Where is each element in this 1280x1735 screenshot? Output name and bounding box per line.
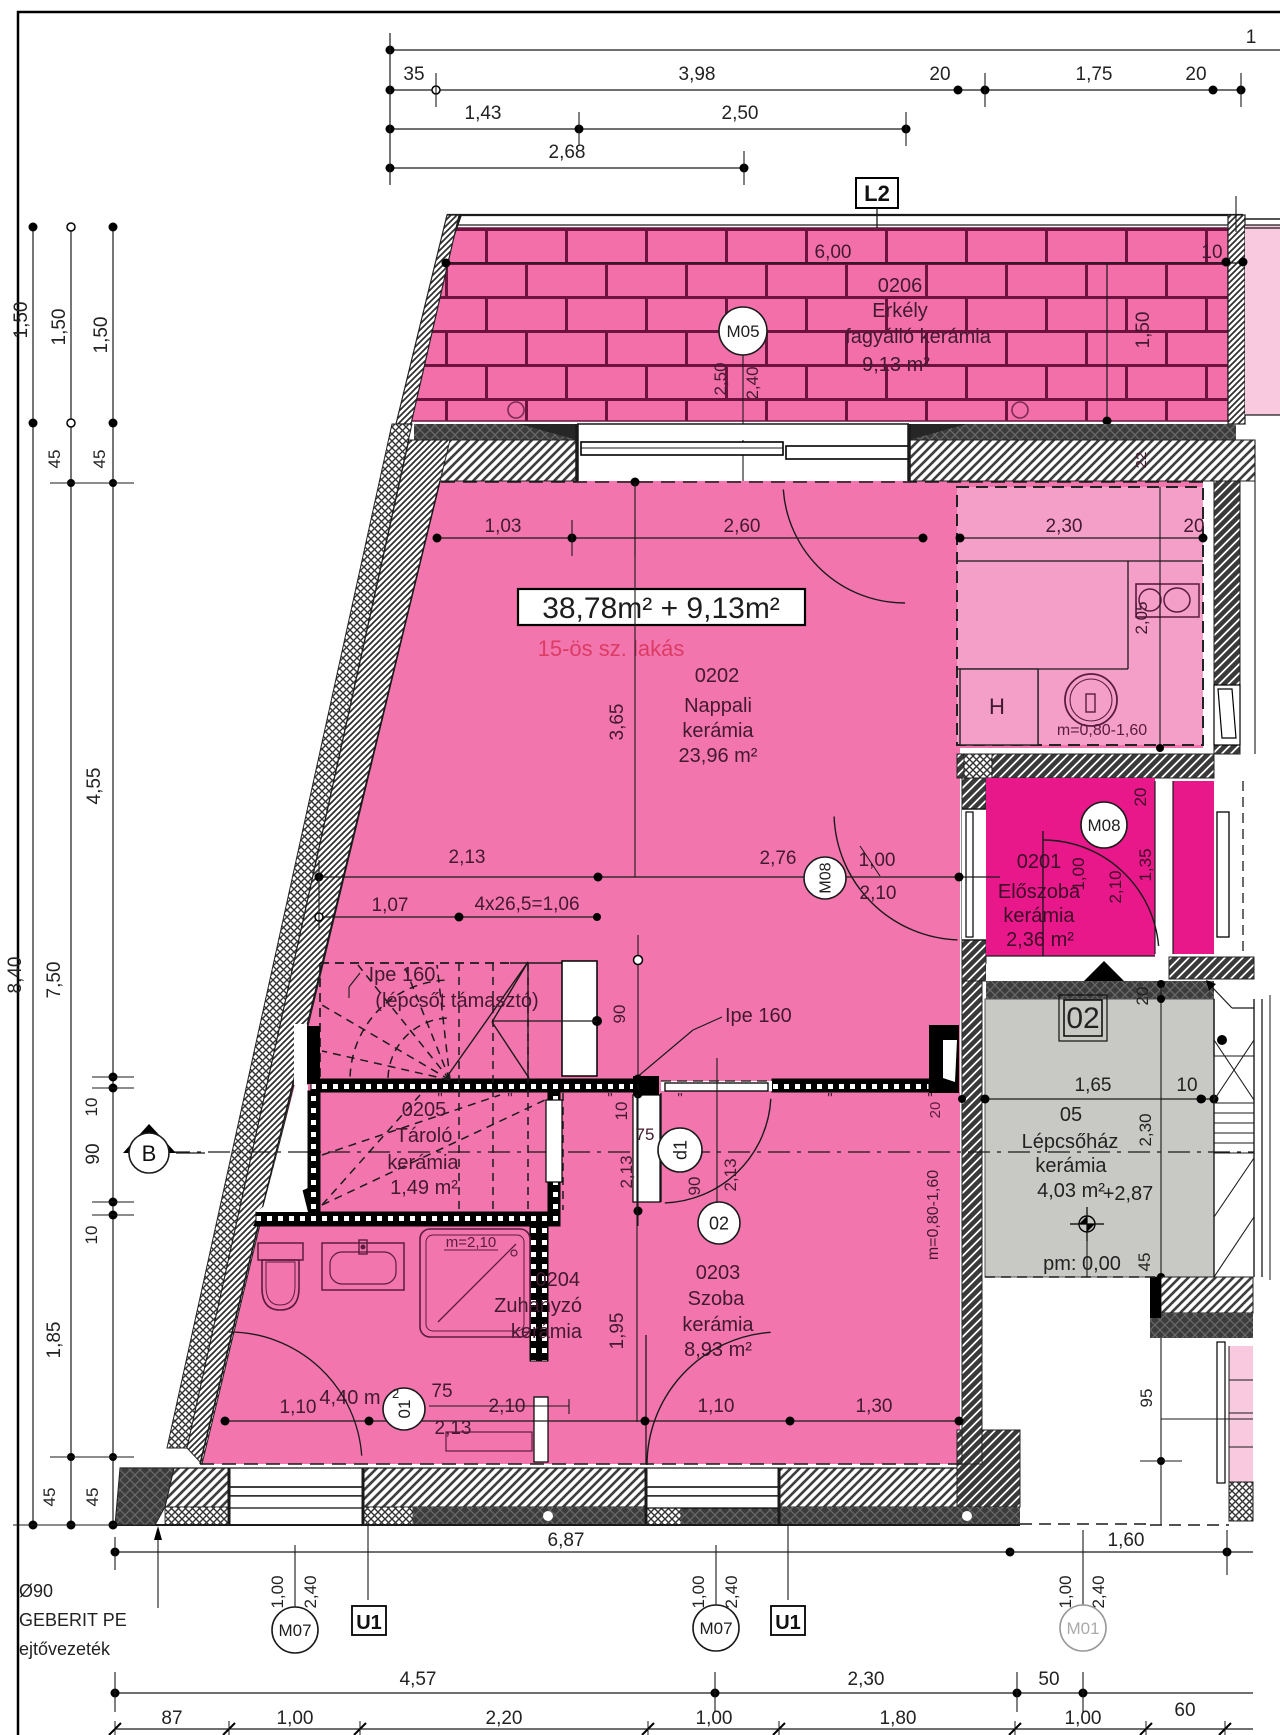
svg-text:6,87: 6,87 [548,1530,585,1551]
svg-text:1,30: 1,30 [856,1396,893,1417]
svg-text:6,00: 6,00 [815,242,852,263]
svg-text:+2,87: +2,87 [1103,1183,1154,1205]
svg-text:9,13 m²: 9,13 m² [862,354,930,376]
svg-text:45: 45 [90,450,109,469]
svg-text:10: 10 [612,1102,631,1121]
svg-text:1: 1 [1246,27,1257,48]
svg-text:m=2,10: m=2,10 [446,1234,496,1251]
svg-text:10: 10 [82,1226,101,1245]
svg-text:20: 20 [1131,788,1150,807]
svg-text:Szoba: Szoba [688,1288,746,1310]
svg-text:1,60: 1,60 [1108,1530,1145,1551]
svg-text:1,00: 1,00 [1065,1708,1102,1729]
svg-text:Erkély: Erkély [872,300,928,322]
svg-text:2,60: 2,60 [724,516,761,537]
svg-text:1,80: 1,80 [880,1708,917,1729]
svg-text:H: H [989,694,1005,719]
svg-text:1,00: 1,00 [1056,1575,1075,1608]
svg-text:Nappali: Nappali [684,695,752,717]
svg-text:75: 75 [431,1381,452,1402]
svg-text:B: B [142,1141,157,1166]
svg-text:Ipe 160: Ipe 160 [725,1005,792,1027]
svg-text:20: 20 [1185,64,1206,85]
svg-text:1,10: 1,10 [698,1396,735,1417]
svg-text:": " [827,1090,832,1107]
svg-text:U1: U1 [356,1612,382,1634]
svg-text:2: 2 [392,1386,399,1401]
svg-text:Ipe 160: Ipe 160 [369,964,436,986]
svg-text:2,40: 2,40 [301,1575,320,1608]
svg-text:10: 10 [1201,242,1222,263]
svg-text:2,68: 2,68 [549,142,586,163]
svg-text:15-ös sz. lakás: 15-ös sz. lakás [538,636,685,661]
svg-text:1,00: 1,00 [1069,857,1088,890]
svg-text:2,30: 2,30 [848,1669,885,1690]
svg-text:kerámia: kerámia [387,1152,459,1174]
svg-text:L2: L2 [864,181,890,206]
svg-text:m=0,80-1,60: m=0,80-1,60 [1057,722,1147,739]
svg-text:2,13: 2,13 [435,1418,472,1439]
svg-text:2,50: 2,50 [722,103,759,124]
svg-text:kerámia: kerámia [1003,905,1075,927]
svg-text:90: 90 [610,1005,629,1024]
svg-text:3,98: 3,98 [679,64,716,85]
svg-text:45: 45 [1135,1253,1154,1272]
svg-text:90: 90 [83,1143,104,1164]
svg-text:60: 60 [1174,1700,1195,1721]
svg-text:ejtővezeték: ejtővezeték [19,1639,111,1659]
svg-text:02: 02 [1066,1002,1099,1035]
svg-text:M05: M05 [726,322,759,341]
svg-text:M07: M07 [278,1621,311,1640]
svg-text:2,36 m²: 2,36 m² [1006,929,1074,951]
svg-text:4,57: 4,57 [400,1669,437,1690]
svg-text:2,10: 2,10 [860,883,897,904]
svg-text:1,85: 1,85 [44,1322,65,1359]
svg-text:M01: M01 [1066,1619,1099,1638]
svg-text:m=0,80-1,60: m=0,80-1,60 [925,1170,942,1260]
svg-text:1,50: 1,50 [91,317,112,354]
svg-text:0201: 0201 [1017,851,1062,873]
svg-text:1,07: 1,07 [372,895,409,916]
svg-text:7,50: 7,50 [44,962,65,999]
svg-text:95: 95 [1137,1389,1156,1408]
svg-text:1,43: 1,43 [465,103,502,124]
svg-text:2,40: 2,40 [722,1575,741,1608]
svg-text:1,35: 1,35 [1136,848,1155,881]
svg-text:45: 45 [45,450,64,469]
svg-text:10: 10 [82,1098,101,1117]
svg-text:50: 50 [1038,1669,1059,1690]
svg-text:8,93 m²: 8,93 m² [684,1339,752,1361]
svg-text:2,13: 2,13 [617,1155,636,1188]
svg-text:4x26,5=1,06: 4x26,5=1,06 [474,894,579,915]
svg-text:kerámia: kerámia [1035,1155,1107,1177]
svg-text:35: 35 [403,64,424,85]
svg-text:": " [507,1090,512,1107]
svg-text:2,05: 2,05 [1132,601,1151,634]
svg-text:M08: M08 [1087,816,1120,835]
svg-text:M08: M08 [818,862,835,893]
svg-text:Tároló: Tároló [396,1125,453,1147]
svg-text:2,30: 2,30 [1136,1113,1155,1146]
svg-text:kerámia: kerámia [682,1314,754,1336]
svg-text:M07: M07 [699,1619,732,1638]
svg-text:1,49 m²: 1,49 m² [390,1177,458,1199]
svg-text:1,00: 1,00 [268,1575,287,1608]
svg-text:20: 20 [1133,987,1152,1006]
svg-text:0203: 0203 [696,1262,741,1284]
svg-text:3,65: 3,65 [607,704,628,741]
svg-text:01: 01 [395,1400,414,1419]
svg-text:1,03: 1,03 [485,516,522,537]
svg-text:05: 05 [1060,1104,1082,1126]
svg-text:45: 45 [40,1488,59,1507]
svg-text:1,10: 1,10 [280,1397,317,1418]
svg-text:4,55: 4,55 [84,768,105,805]
svg-text:2,30: 2,30 [1046,516,1083,537]
svg-text:0205: 0205 [402,1099,447,1121]
svg-text:2,40: 2,40 [1089,1575,1108,1608]
svg-text:": " [927,1090,932,1107]
svg-text:1,50: 1,50 [49,309,70,346]
svg-text:22: 22 [1133,452,1150,469]
svg-text:8,40: 8,40 [5,957,26,994]
svg-text:kerámia: kerámia [682,720,754,742]
svg-text:U1: U1 [775,1612,801,1634]
svg-text:1,00: 1,00 [859,850,896,871]
svg-text:2,20: 2,20 [486,1708,523,1729]
svg-text:1,65: 1,65 [1075,1075,1112,1096]
svg-text:1,00: 1,00 [689,1575,708,1608]
svg-text:2,40: 2,40 [743,366,762,399]
svg-text:2,13: 2,13 [721,1158,740,1191]
svg-text:2,76: 2,76 [760,848,797,869]
svg-text:1,00: 1,00 [696,1708,733,1729]
svg-text:0204: 0204 [536,1269,581,1291]
svg-text:75: 75 [636,1125,655,1144]
svg-text:4,40 m: 4,40 m [319,1387,380,1409]
svg-text:1,50: 1,50 [1133,312,1154,349]
svg-text:(lépcsőt támasztó): (lépcsőt támasztó) [375,990,538,1012]
svg-text:1,95: 1,95 [607,1313,628,1350]
svg-text:GEBERIT PE: GEBERIT PE [19,1610,127,1630]
svg-text:02: 02 [709,1213,729,1233]
svg-text:20: 20 [929,64,950,85]
svg-text:0206: 0206 [878,275,923,297]
svg-text:Zuhanyzó: Zuhanyzó [494,1295,582,1317]
svg-text:kerámia: kerámia [511,1321,583,1343]
svg-text:d1: d1 [670,1140,690,1160]
svg-text:pm: 0,00: pm: 0,00 [1043,1253,1121,1275]
svg-text:2,50: 2,50 [711,362,730,395]
svg-text:38,78m² + 9,13m²: 38,78m² + 9,13m² [542,592,780,625]
svg-text:90: 90 [685,1177,704,1196]
svg-text:23,96 m²: 23,96 m² [679,745,758,767]
svg-text:0202: 0202 [695,665,740,687]
svg-text:Ø90: Ø90 [19,1581,53,1601]
svg-text:4,03 m²: 4,03 m² [1037,1180,1105,1202]
svg-text:Lépcsőház: Lépcsőház [1022,1131,1119,1153]
svg-text:fagyálló kerámia: fagyálló kerámia [845,326,992,348]
svg-text:45: 45 [83,1488,102,1507]
svg-text:2,13: 2,13 [449,847,486,868]
svg-text:1,75: 1,75 [1076,64,1113,85]
svg-text:1,50: 1,50 [11,302,32,339]
svg-text:1,00: 1,00 [277,1708,314,1729]
svg-text:10: 10 [1176,1075,1197,1096]
svg-text:2,10: 2,10 [1106,870,1125,903]
svg-text:87: 87 [161,1708,182,1729]
svg-text:": " [677,1090,682,1107]
